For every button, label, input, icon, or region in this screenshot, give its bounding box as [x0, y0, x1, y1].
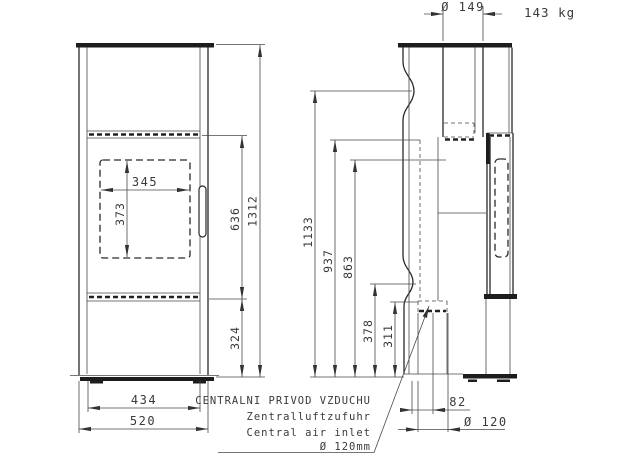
- side-view: [398, 43, 517, 382]
- side-foot-back: [468, 380, 477, 383]
- side-flue-connector-hidden: [444, 123, 474, 137]
- dim-height-937: 937: [321, 249, 335, 273]
- front-view: [70, 43, 219, 384]
- dim-overall-width: 520: [130, 414, 156, 428]
- technical-drawing-page: 345 373 636 324 1312 434 520 Ø 149 1133 …: [0, 0, 624, 460]
- front-dimension-lines: [79, 45, 260, 429]
- dim-rear-outlet-height: 1133: [301, 216, 315, 248]
- side-plinth: [486, 299, 510, 374]
- side-top-plate: [398, 43, 512, 48]
- dim-height-863: 863: [341, 255, 355, 279]
- note-english: Central air inlet: [247, 427, 371, 439]
- dim-inner-width: 434: [131, 393, 157, 407]
- note-german: Zentralluftzufuhr: [247, 411, 371, 423]
- front-extension-lines: [79, 45, 265, 434]
- front-base-bar: [80, 377, 214, 381]
- dim-glass-width: 345: [132, 175, 158, 189]
- front-inner-frame: [87, 48, 200, 375]
- front-dimensions: 345 373 636 324 1312 434 520: [79, 45, 265, 434]
- dim-flue-diameter: Ø 149: [441, 0, 485, 14]
- side-flue-pipe: [443, 48, 483, 138]
- front-foot-left: [90, 381, 103, 384]
- front-top-plate: [76, 43, 214, 48]
- side-internal-structure: [438, 137, 486, 301]
- dim-height-311: 311: [381, 324, 395, 348]
- stove-dimension-drawing: 345 373 636 324 1312 434 520 Ø 149 1133 …: [0, 0, 624, 460]
- side-door-sill: [484, 294, 517, 299]
- front-body-outline: [79, 48, 208, 376]
- front-foot-right: [193, 381, 206, 384]
- dim-glass-height: 373: [113, 202, 127, 226]
- dim-firebox-zone-height: 636: [228, 207, 242, 231]
- side-air-inlet-tube: [418, 313, 447, 374]
- side-front-inner-lines: [509, 48, 510, 295]
- weight-label: 143 kg: [524, 5, 575, 20]
- note-czech: CENTRALNI PRIVOD VZDUCHU: [195, 395, 371, 407]
- side-base-bar: [463, 374, 517, 379]
- front-grille-bottom: [87, 293, 200, 301]
- note-diameter: Ø 120mm: [320, 441, 371, 453]
- dim-height-378: 378: [361, 319, 375, 343]
- side-foot-front: [497, 380, 510, 383]
- front-grille-top: [87, 131, 200, 138]
- dim-plinth-height: 324: [228, 326, 242, 350]
- side-glass-hidden: [495, 159, 508, 257]
- side-back-profile: [403, 48, 414, 375]
- dim-inlet-diameter: Ø 120: [464, 415, 508, 429]
- dim-inlet-offset: 82: [449, 395, 466, 409]
- front-door-handle: [199, 186, 206, 237]
- side-dimension-lines: [315, 14, 505, 430]
- side-door-hinge: [486, 133, 490, 164]
- dim-total-height: 1312: [246, 195, 260, 227]
